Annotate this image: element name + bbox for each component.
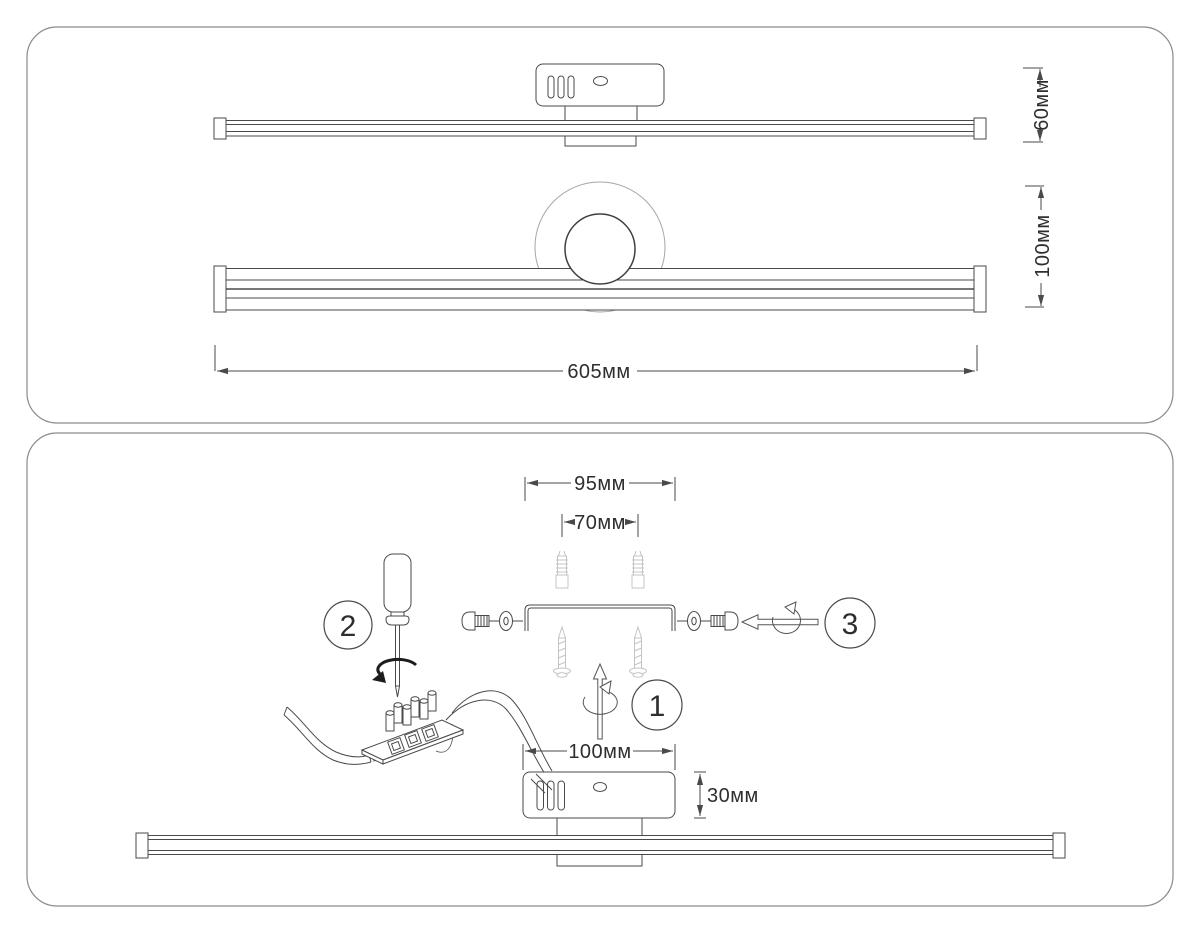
dim-height-label: 100мм bbox=[1032, 214, 1054, 277]
knob-circle bbox=[565, 214, 635, 284]
canopy-box bbox=[523, 772, 675, 818]
end-cap-left bbox=[214, 118, 226, 139]
dim-canopy-width-label: 100мм bbox=[568, 741, 631, 763]
end-cap-left bbox=[136, 833, 148, 858]
dim-canopy-height-label: 30мм bbox=[707, 785, 759, 807]
lamp-tube bbox=[226, 121, 974, 137]
end-cap-right bbox=[974, 266, 986, 312]
dim-bracket-width-label: 95мм bbox=[574, 473, 626, 495]
step2-number: 2 bbox=[340, 610, 357, 643]
step1-number: 1 bbox=[649, 690, 666, 723]
wall-plug-right bbox=[632, 551, 644, 588]
end-cap-right bbox=[1053, 833, 1065, 858]
washer-left-icon bbox=[500, 612, 513, 631]
wall-plug-left bbox=[556, 551, 568, 588]
step3-number: 3 bbox=[842, 608, 859, 641]
lamp-tube bbox=[148, 836, 1053, 855]
dim-hole-spacing-label: 70мм bbox=[574, 512, 626, 534]
dim-length-label: 605мм bbox=[567, 361, 630, 383]
end-cap-right bbox=[974, 118, 986, 139]
end-cap-left bbox=[214, 266, 226, 312]
dim-depth-label: 60мм bbox=[1031, 79, 1053, 131]
installation-diagram: 60мм 100мм 605мм 95мм 70мм bbox=[0, 0, 1200, 933]
diagram-canvas: 60мм 100мм 605мм 95мм 70мм bbox=[0, 0, 1200, 933]
